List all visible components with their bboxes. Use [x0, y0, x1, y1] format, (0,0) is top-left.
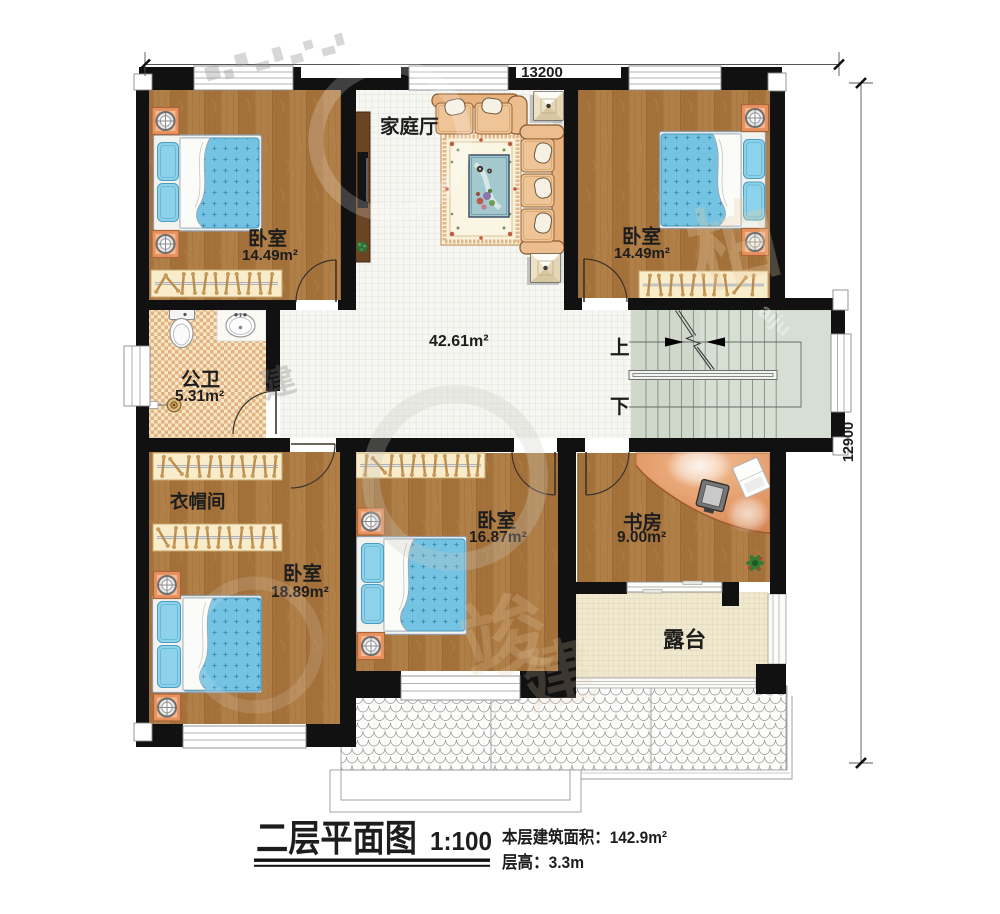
svg-text:下: 下	[610, 396, 630, 418]
svg-text:二层平面图: 二层平面图	[256, 818, 417, 859]
svg-text:14.49m²: 14.49m²	[614, 245, 670, 262]
svg-text:上: 上	[610, 337, 630, 359]
svg-text:5.31m²: 5.31m²	[175, 388, 224, 405]
svg-text:13200: 13200	[521, 64, 563, 81]
svg-text:衣帽间: 衣帽间	[170, 491, 226, 512]
svg-text:42.61m²: 42.61m²	[429, 333, 489, 350]
svg-text:12900: 12900	[841, 422, 857, 462]
svg-text:露台: 露台	[663, 627, 706, 652]
svg-text:1:100: 1:100	[430, 826, 492, 856]
svg-text:卧室: 卧室	[283, 562, 322, 585]
svg-text:本层建筑面积：142.9m²: 本层建筑面积：142.9m²	[502, 827, 667, 847]
svg-text:家庭厅: 家庭厅	[380, 115, 439, 138]
svg-text:14.49m²: 14.49m²	[242, 247, 298, 264]
svg-text:层高：3.3m: 层高：3.3m	[502, 852, 584, 872]
svg-text:9.00m²: 9.00m²	[617, 529, 666, 546]
